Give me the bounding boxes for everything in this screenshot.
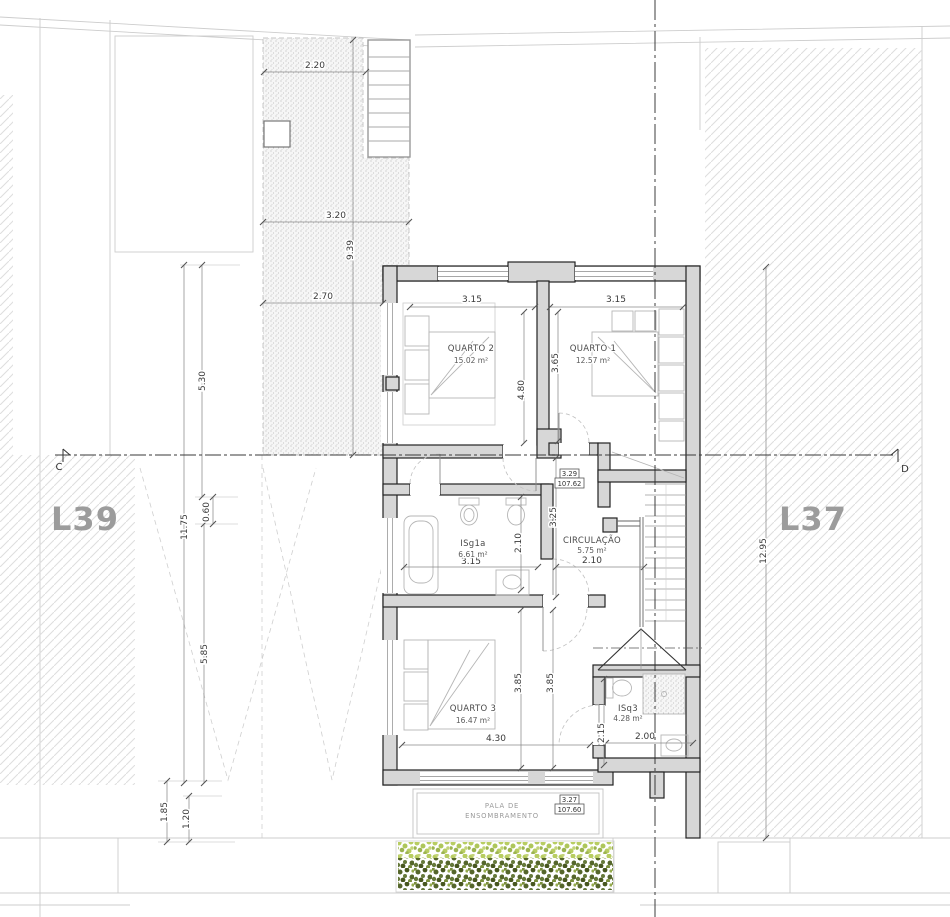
floor-plan-canvas: 2.20 3.20 9.39 2.70 5.30 11.75 0.60 5.85… bbox=[0, 0, 950, 917]
dim-q3-width: 4.30 bbox=[486, 734, 506, 744]
level-upper-elevation: 107.62 bbox=[558, 480, 582, 488]
room-area-quarto2: 15.02 m² bbox=[454, 356, 488, 365]
dim-patio-bottom: 2.70 bbox=[313, 292, 333, 302]
dim-circ-width: 2.10 bbox=[582, 556, 602, 566]
room-label-isq3: ISq3 bbox=[618, 704, 638, 714]
dim-site-lower: 5.85 bbox=[200, 644, 210, 664]
room-label-isg1a: ISg1a bbox=[460, 539, 485, 549]
section-label-c: C bbox=[56, 462, 63, 473]
room-label-quarto2: QUARTO 2 bbox=[448, 344, 494, 354]
dim-isq3-depth: 2.15 bbox=[597, 723, 607, 743]
dim-patio-depth: 9.39 bbox=[346, 240, 356, 260]
dim-site-right: 12.95 bbox=[759, 538, 769, 564]
shower-isq3 bbox=[643, 674, 685, 714]
room-label-circulacao: CIRCULAÇÃO bbox=[563, 535, 621, 546]
slope-marks bbox=[140, 455, 405, 840]
level-marker-lower: 3.27 107.60 bbox=[555, 795, 584, 814]
lot-hatch-right bbox=[705, 48, 922, 837]
dim-q3-depth-a: 3.85 bbox=[514, 673, 524, 693]
dim-q1-width: 3.15 bbox=[606, 295, 626, 305]
dim-isg1a-depth: 2.10 bbox=[514, 533, 524, 553]
level-lower-elevation: 107.60 bbox=[558, 806, 582, 814]
level-upper-height: 3.29 bbox=[562, 470, 577, 478]
room-label-quarto3: QUARTO 3 bbox=[450, 704, 496, 714]
room-area-isg1a: 6.61 m² bbox=[458, 550, 487, 559]
lot-label-right: L37 bbox=[779, 500, 847, 538]
dim-site-canopy-b: 1.20 bbox=[182, 809, 192, 829]
room-area-isq3: 4.28 m² bbox=[613, 714, 642, 723]
room-area-quarto1: 12.57 m² bbox=[576, 356, 610, 365]
stair-newel-post bbox=[603, 518, 617, 532]
dim-site-canopy-a: 1.85 bbox=[160, 802, 170, 822]
lot-hatch-left-strip bbox=[0, 95, 13, 455]
dim-site-offset: 0.60 bbox=[202, 502, 212, 522]
dim-patio-mid: 3.20 bbox=[326, 211, 346, 221]
section-label-d: D bbox=[901, 464, 909, 475]
floor-plan-page: 2.20 3.20 9.39 2.70 5.30 11.75 0.60 5.85… bbox=[0, 0, 950, 917]
canopy-label-line1: PALA DE bbox=[485, 802, 519, 810]
dim-site-total: 11.75 bbox=[180, 514, 190, 540]
roof-ladder bbox=[368, 40, 410, 157]
dim-hall-depth: 3.25 bbox=[549, 507, 559, 527]
room-area-circulacao: 5.75 m² bbox=[577, 546, 606, 555]
planter-box bbox=[264, 121, 290, 147]
dim-q1-depth: 3.65 bbox=[551, 353, 561, 373]
hedge bbox=[396, 841, 614, 892]
dim-q3-depth-b: 3.85 bbox=[546, 673, 556, 693]
room-label-quarto1: QUARTO 1 bbox=[570, 344, 616, 354]
canopy-label-line2: ENSOMBRAMENTO bbox=[465, 812, 539, 820]
room-area-quarto3: 16.47 m² bbox=[456, 716, 490, 725]
level-lower-height: 3.27 bbox=[562, 796, 577, 804]
lot-label-left: L39 bbox=[51, 500, 119, 538]
wall-square-marker bbox=[386, 377, 399, 390]
dim-patio-top: 2.20 bbox=[305, 61, 325, 71]
dim-isq3-width: 2.00 bbox=[635, 732, 655, 742]
dim-site-upper: 5.30 bbox=[198, 371, 208, 391]
dim-q2-depth: 4.80 bbox=[517, 380, 527, 400]
dim-q2-width: 3.15 bbox=[462, 295, 482, 305]
